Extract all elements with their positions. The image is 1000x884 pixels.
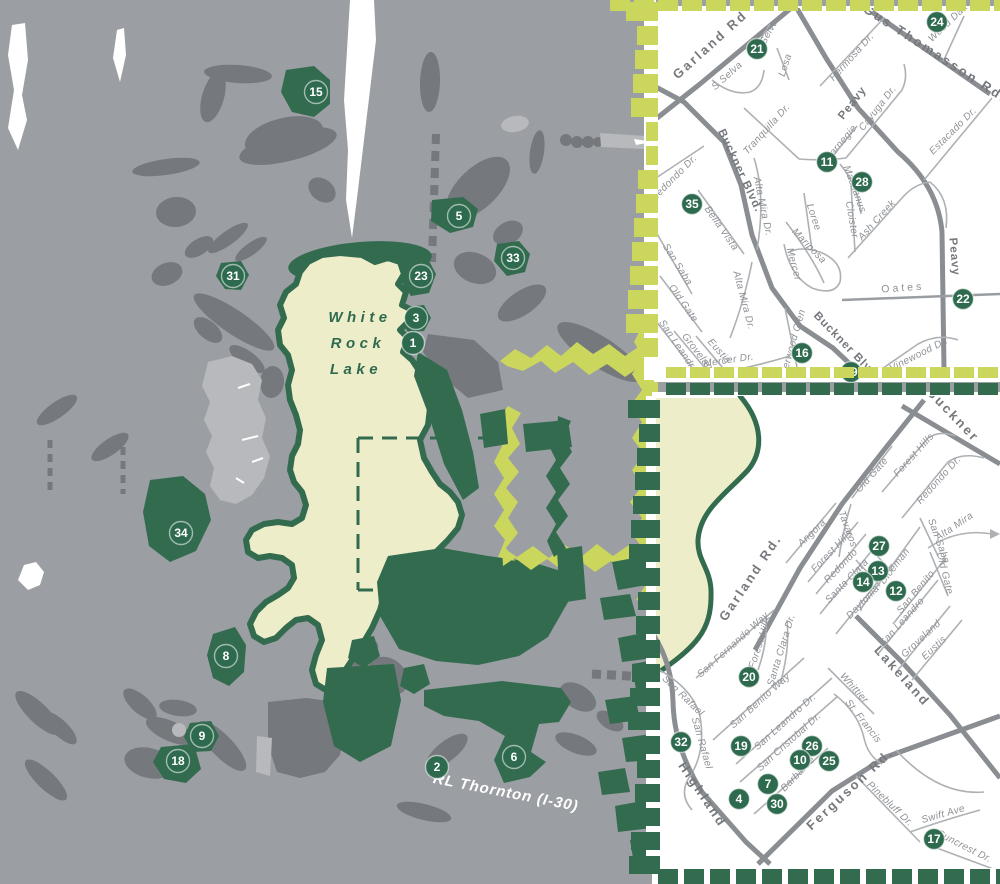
torn-tooth [637, 338, 658, 357]
inset-top-map: Garland RdN SelvaLosaS SelvaTranquilla D… [610, 0, 1000, 384]
marker-1[interactable]: 1 [402, 332, 425, 355]
torn-tooth [810, 383, 830, 395]
torn-tooth [628, 290, 658, 309]
marker-number: 12 [889, 584, 903, 598]
torn-tooth [736, 869, 756, 884]
marker-20[interactable]: 20 [739, 667, 760, 688]
torn-tooth [638, 170, 658, 189]
torn-tooth [882, 367, 902, 378]
marker-number: 17 [927, 832, 941, 846]
torn-tooth [946, 0, 966, 11]
torn-tooth [632, 242, 658, 261]
torn-tooth [638, 592, 660, 610]
torn-tooth [996, 869, 1000, 884]
torn-tooth [634, 218, 658, 237]
torn-tooth [762, 367, 782, 378]
marker-12[interactable]: 12 [886, 581, 907, 602]
marker-10[interactable]: 10 [790, 750, 811, 771]
marker-number: 30 [770, 797, 784, 811]
marker-number: 26 [805, 739, 819, 753]
marker-number: 10 [793, 753, 807, 767]
torn-tooth [834, 367, 854, 378]
map-canvas: White Rock Lake RL Thornton (I-30) 15531… [0, 0, 1000, 884]
torn-tooth [786, 367, 806, 378]
torn-tooth [874, 0, 894, 11]
torn-tooth [637, 760, 660, 778]
marker-6[interactable]: 6 [503, 746, 526, 769]
marker-21[interactable]: 21 [747, 39, 768, 60]
marker-number: 20 [742, 670, 756, 684]
marker-30[interactable]: 30 [767, 794, 788, 815]
torn-tooth [882, 383, 902, 395]
marker-number: 25 [822, 754, 836, 768]
land-shapes-shape [560, 134, 572, 146]
torn-tooth [738, 383, 758, 395]
marker-18[interactable]: 18 [167, 750, 190, 773]
torn-tooth [710, 869, 730, 884]
marker-number: 33 [506, 251, 520, 265]
torn-tooth [636, 616, 660, 634]
marker-number: 6 [511, 750, 518, 764]
torn-tooth [978, 383, 998, 395]
torn-tooth [906, 367, 926, 378]
torn-tooth [922, 0, 942, 11]
marker-35[interactable]: 35 [682, 194, 703, 215]
torn-tooth [682, 0, 702, 11]
torn-tooth [930, 367, 950, 378]
torn-tooth [631, 520, 660, 538]
torn-tooth [714, 367, 734, 378]
torn-tooth [635, 784, 660, 802]
marker-7[interactable]: 7 [758, 774, 779, 795]
lake-label-line2: Rock [331, 335, 386, 352]
lake-label-line3: Lake [330, 361, 382, 378]
torn-tooth [658, 0, 678, 11]
marker-number: 32 [674, 735, 688, 749]
torn-tooth [978, 367, 998, 378]
torn-tooth [633, 74, 658, 93]
marker-11[interactable]: 11 [817, 152, 838, 173]
torn-tooth [994, 0, 1000, 11]
marker-25[interactable]: 25 [819, 751, 840, 772]
torn-tooth [714, 383, 734, 395]
torn-tooth [666, 367, 686, 378]
torn-tooth [646, 146, 658, 165]
marker-24[interactable]: 24 [927, 12, 948, 33]
marker-4[interactable]: 4 [729, 789, 750, 810]
marker-number: 24 [930, 15, 944, 29]
torn-tooth [738, 367, 758, 378]
land-shapes-light-shape [202, 356, 270, 504]
torn-link-shapes-shape-shape [600, 594, 636, 620]
marker-28[interactable]: 28 [852, 172, 873, 193]
torn-tooth [639, 736, 660, 754]
torn-tooth [632, 664, 660, 682]
marker-9[interactable]: 9 [191, 725, 214, 748]
torn-tooth [866, 869, 886, 884]
marker-22[interactable]: 22 [953, 289, 974, 310]
torn-tooth [628, 712, 660, 730]
marker-number: 27 [872, 539, 886, 553]
torn-tooth [786, 383, 806, 395]
torn-tooth [826, 0, 846, 11]
marker-number: 31 [226, 269, 240, 283]
torn-tooth [684, 869, 704, 884]
torn-tooth [631, 832, 660, 850]
torn-tooth [970, 869, 990, 884]
torn-tooth [754, 0, 774, 11]
marker-number: 1 [410, 336, 417, 350]
torn-tooth [834, 383, 854, 395]
torn-tooth [690, 383, 710, 395]
marker-number: 4 [736, 792, 743, 806]
marker-31[interactable]: 31 [222, 265, 245, 288]
lake-label-line1: White [328, 309, 391, 326]
torn-link-shapes-shape-shape [557, 546, 586, 603]
torn-tooth [778, 0, 798, 11]
torn-tooth [762, 383, 782, 395]
torn-link-shapes-shape-shape [480, 409, 508, 448]
marker-number: 22 [956, 292, 970, 306]
marker-number: 5 [456, 209, 463, 223]
torn-tooth [630, 266, 658, 285]
torn-tooth [658, 869, 678, 884]
torn-tooth [640, 568, 660, 586]
torn-tooth [906, 383, 926, 395]
marker-19[interactable]: 19 [731, 736, 752, 757]
torn-tooth [634, 640, 660, 658]
torn-tooth [788, 869, 808, 884]
torn-tooth [730, 0, 750, 11]
torn-tooth [858, 383, 878, 395]
torn-tooth [639, 424, 660, 442]
white-rock-lake-map: White Rock Lake RL Thornton (I-30) 15531… [0, 0, 1000, 884]
marker-8[interactable]: 8 [215, 645, 238, 668]
torn-tooth [858, 367, 878, 378]
torn-tooth [892, 869, 912, 884]
marker-number: 18 [171, 754, 185, 768]
land-shapes-light-shape [172, 723, 186, 737]
marker-number: 35 [685, 197, 699, 211]
marker-number: 14 [856, 575, 870, 589]
marker-number: 13 [871, 564, 885, 578]
torn-tooth [954, 367, 974, 378]
marker-number: 34 [174, 526, 188, 540]
land-shapes-shape [571, 136, 583, 148]
marker-number: 9 [199, 729, 206, 743]
marker-number: 28 [855, 175, 869, 189]
torn-tooth [629, 544, 660, 562]
torn-tooth [918, 869, 938, 884]
marker-3[interactable]: 3 [405, 307, 428, 330]
torn-tooth [762, 869, 782, 884]
marker-number: 11 [821, 155, 834, 169]
marker-number: 23 [414, 269, 428, 283]
marker-number: 16 [795, 346, 809, 360]
torn-tooth [631, 98, 658, 117]
torn-tooth [840, 869, 860, 884]
torn-tooth [690, 367, 710, 378]
torn-tooth [850, 0, 870, 11]
torn-tooth [706, 0, 726, 11]
torn-tooth [814, 869, 834, 884]
marker-number: 7 [765, 777, 772, 791]
torn-tooth [970, 0, 990, 11]
torn-tooth [898, 0, 918, 11]
torn-tooth [633, 808, 660, 826]
marker-number: 19 [734, 739, 748, 753]
torn-tooth [626, 314, 658, 333]
torn-tooth [630, 688, 660, 706]
marker-number: 8 [223, 649, 230, 663]
torn-tooth [810, 367, 830, 378]
torn-tooth [635, 50, 658, 69]
marker-14[interactable]: 14 [853, 572, 874, 593]
land-shapes-light-shape [256, 736, 272, 776]
marker-number: 15 [309, 85, 323, 99]
torn-tooth [944, 869, 964, 884]
marker-23[interactable]: 23 [410, 265, 433, 288]
torn-tooth [636, 194, 658, 213]
land-shapes-shape [582, 136, 594, 148]
torn-tooth [629, 856, 660, 874]
torn-link-shapes-shape-shape [523, 420, 572, 452]
marker-27[interactable]: 27 [869, 536, 890, 557]
marker-15[interactable]: 15 [305, 81, 328, 104]
torn-tooth [637, 26, 658, 45]
torn-tooth [954, 383, 974, 395]
marker-2[interactable]: 2 [426, 756, 449, 779]
marker-number: 2 [434, 760, 441, 774]
torn-tooth [646, 122, 658, 141]
marker-17[interactable]: 17 [924, 829, 945, 850]
marker-5[interactable]: 5 [448, 205, 471, 228]
torn-tooth [633, 496, 660, 514]
torn-tooth [802, 0, 822, 11]
marker-34[interactable]: 34 [170, 522, 193, 545]
marker-number: 3 [413, 311, 420, 325]
torn-tooth [628, 400, 660, 418]
torn-tooth [666, 383, 686, 395]
marker-16[interactable]: 16 [792, 343, 813, 364]
marker-32[interactable]: 32 [671, 732, 692, 753]
torn-tooth [635, 472, 660, 490]
torn-link-shapes-shape-shape [598, 768, 630, 795]
inset-bottom-map: BucknerGarland Rd.Old GateForest HillsRe… [628, 383, 1000, 884]
torn-tooth [637, 448, 660, 466]
marker-number: 21 [750, 42, 764, 56]
torn-tooth [626, 2, 658, 21]
marker-33[interactable]: 33 [502, 247, 525, 270]
torn-tooth [930, 383, 950, 395]
